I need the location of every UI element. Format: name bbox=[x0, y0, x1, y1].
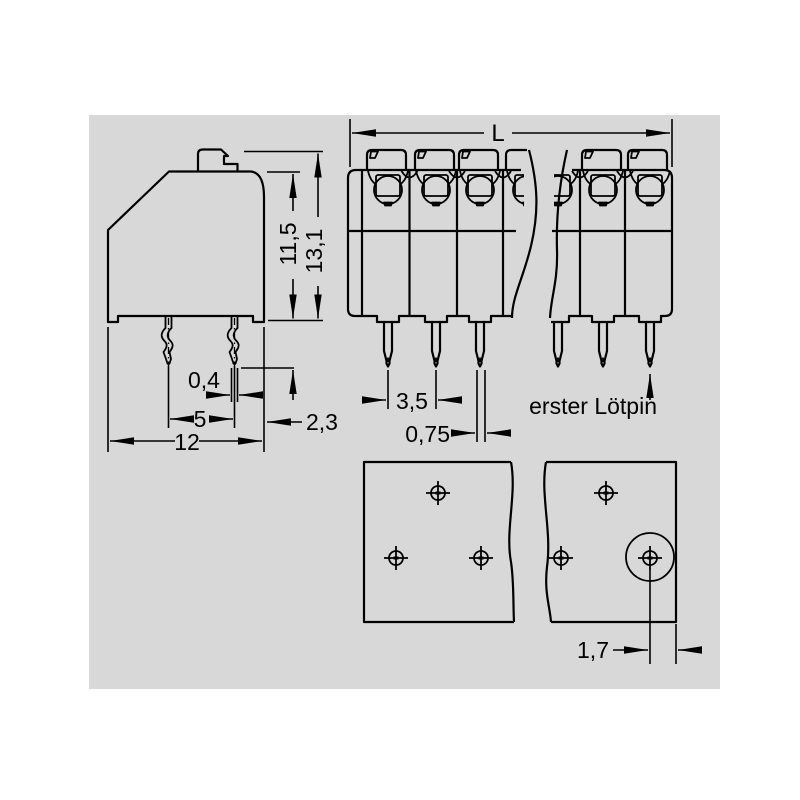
dim-length-label: L bbox=[491, 120, 504, 147]
drill-pad bbox=[594, 481, 618, 505]
footprint-left-plate bbox=[364, 462, 514, 622]
dim-pitch: 3,5 bbox=[362, 370, 462, 414]
solder-pin bbox=[432, 322, 440, 367]
dim-depth-label: 12 bbox=[174, 429, 200, 455]
front-pins bbox=[384, 322, 654, 367]
drill-pad bbox=[384, 546, 408, 570]
side-pin-2 bbox=[228, 316, 239, 366]
break-line-4 bbox=[544, 462, 551, 622]
terminal-tab bbox=[582, 150, 621, 170]
dim-pin-thickness-label: 0,4 bbox=[188, 367, 220, 393]
drill-pad bbox=[426, 481, 450, 505]
terminal-cell bbox=[630, 171, 670, 206]
front-body-left bbox=[348, 150, 547, 322]
drill-pad bbox=[549, 546, 573, 570]
terminal-tab bbox=[367, 150, 406, 170]
first-solder-pin-label: erster Lötpin bbox=[529, 393, 657, 419]
dim-rear-offset: 2,3 bbox=[267, 409, 338, 435]
front-body-right bbox=[538, 150, 672, 322]
dim-depth: 12 bbox=[108, 327, 264, 455]
dim-pin-thickness: 0,4 bbox=[188, 367, 263, 402]
dim-pitch-label: 3,5 bbox=[396, 388, 428, 414]
drawing-page: 11,5 13,1 0,4 bbox=[0, 0, 800, 800]
dim-height-body: 11,5 bbox=[275, 222, 301, 265]
dim-rear-offset-label: 2,3 bbox=[306, 409, 338, 435]
solder-pin bbox=[646, 322, 654, 367]
dim-height-total: 13,1 bbox=[301, 229, 327, 274]
drill-pad bbox=[469, 546, 493, 570]
side-pin-1 bbox=[162, 316, 173, 366]
side-view: 11,5 13,1 0,4 bbox=[108, 150, 338, 456]
dim-pin-width-label: 0,75 bbox=[405, 421, 450, 447]
terminal-tab bbox=[415, 150, 454, 170]
solder-pin bbox=[554, 322, 562, 367]
solder-pin bbox=[384, 322, 392, 367]
drill-pad-first-pin bbox=[638, 546, 662, 570]
break-line-3 bbox=[509, 462, 514, 622]
dim-hole-edge-offset: 1,7 bbox=[577, 570, 700, 664]
terminal-cell-partial bbox=[507, 171, 547, 206]
footprint-right-plate bbox=[544, 462, 676, 622]
terminal-tab bbox=[459, 150, 498, 170]
dim-hole-edge-offset-label: 1,7 bbox=[577, 637, 609, 663]
dim-length: L bbox=[350, 119, 672, 167]
terminal-tab-partial bbox=[506, 150, 527, 170]
solder-pin bbox=[599, 322, 607, 367]
front-view: L bbox=[348, 119, 672, 447]
side-pusher-tab bbox=[198, 150, 238, 172]
gray-panel: 11,5 13,1 0,4 bbox=[89, 115, 720, 689]
side-body-outline bbox=[108, 172, 264, 323]
first-solder-pin-callout: erster Lötpin bbox=[529, 374, 657, 419]
terminal-tab bbox=[628, 150, 667, 170]
solder-pin bbox=[476, 322, 484, 367]
footprint-view: 1,7 bbox=[364, 462, 700, 664]
dim-heights: 11,5 13,1 bbox=[244, 152, 327, 321]
technical-drawing: 11,5 13,1 0,4 bbox=[89, 115, 720, 689]
